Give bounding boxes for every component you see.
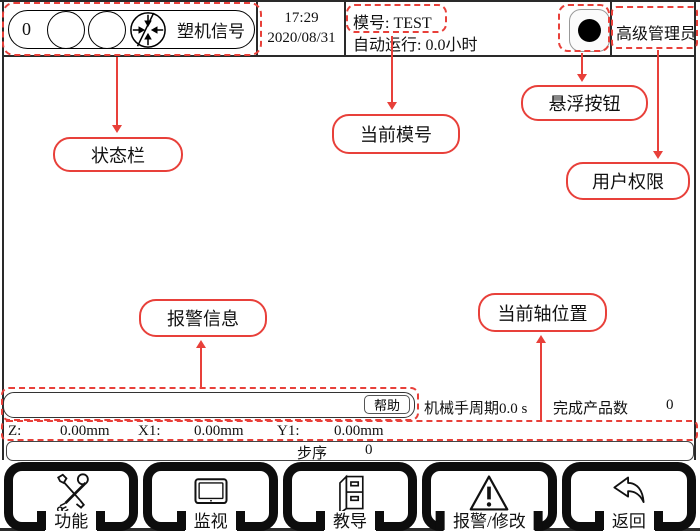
tools-icon: [49, 472, 93, 514]
callout-text: 状态栏: [91, 142, 145, 168]
auto-run-label: 自动运行: 0.0小时: [353, 31, 477, 55]
date-text: 2020/08/31: [267, 28, 335, 48]
callout-arrow: [536, 335, 546, 420]
callout-user-permission: 用户权限: [566, 162, 690, 200]
axis-z-label: Z:: [8, 423, 21, 440]
annotation-outline-status-bar: [2, 2, 262, 56]
return-button[interactable]: 返回: [562, 462, 696, 531]
clock: 17:29 2020/08/31: [258, 0, 345, 55]
robot-cycle-text: 机械手周期: [424, 401, 499, 417]
return-button-label: 返回: [603, 511, 655, 531]
alarm-modify-button[interactable]: 报警/修改: [422, 462, 556, 531]
annotation-outline-floating-button: [558, 4, 610, 52]
alarm-modify-button-label: 报警/修改: [444, 511, 535, 531]
callout-status-bar: 状态栏: [53, 137, 183, 172]
teach-button[interactable]: 教导: [283, 462, 417, 531]
warning-icon: [467, 472, 511, 514]
callout-arrow: [653, 50, 663, 159]
axis-x1-value: 0.00mm: [194, 423, 244, 440]
annotation-outline-mold-number: [346, 4, 447, 33]
hmi-screen: 0 塑机信号 17:29 2020/08/31 模号: TEST 自动运行: 0…: [0, 0, 700, 531]
callout-text: 悬浮按钮: [549, 90, 621, 116]
screen-right-border: [694, 0, 696, 460]
robot-cycle-label: 机械手周期0.0 s: [424, 397, 527, 418]
step-label: 步序: [297, 442, 327, 463]
annotation-outline-user-role: [611, 6, 698, 49]
axis-y1-label: Y1:: [277, 423, 300, 440]
robot-cycle-value: 0.0 s: [499, 401, 527, 417]
callout-text: 用户权限: [592, 168, 664, 194]
step-sequence-row: 步序 0: [6, 441, 694, 461]
step-value: 0: [365, 442, 373, 459]
back-arrow-icon: [607, 472, 651, 514]
axis-z-value: 0.00mm: [60, 423, 110, 440]
monitor-button-label: 监视: [185, 511, 237, 531]
function-button-label: 功能: [45, 511, 97, 531]
function-button[interactable]: 功能: [4, 462, 138, 531]
axis-y1-value: 0.00mm: [334, 423, 384, 440]
callout-arrow: [112, 57, 122, 133]
cabinet-icon: [328, 472, 372, 514]
axis-x1-label: X1:: [138, 423, 161, 440]
callout-arrow: [196, 340, 206, 388]
callout-text: 当前模号: [360, 121, 432, 147]
callout-current-mold: 当前模号: [332, 114, 460, 154]
callout-text: 当前轴位置: [498, 300, 588, 326]
callout-axis-position: 当前轴位置: [478, 293, 607, 332]
callout-arrow: [387, 36, 397, 110]
help-button[interactable]: 帮助: [364, 395, 410, 414]
bottom-toolbar: 功能 监视 教导: [4, 462, 696, 531]
callout-alarm-info: 报警信息: [139, 299, 267, 337]
monitor-button[interactable]: 监视: [143, 462, 277, 531]
callout-text: 报警信息: [167, 305, 239, 331]
time-text: 17:29: [284, 8, 318, 28]
teach-button-label: 教导: [324, 511, 376, 531]
finished-products-count: 0: [666, 397, 674, 414]
callout-floating-button: 悬浮按钮: [521, 85, 648, 121]
alarm-message-bar[interactable]: 帮助: [3, 392, 415, 418]
monitor-icon: [189, 472, 233, 514]
callout-arrow: [577, 53, 587, 82]
finished-products-label: 完成产品数: [553, 397, 628, 418]
